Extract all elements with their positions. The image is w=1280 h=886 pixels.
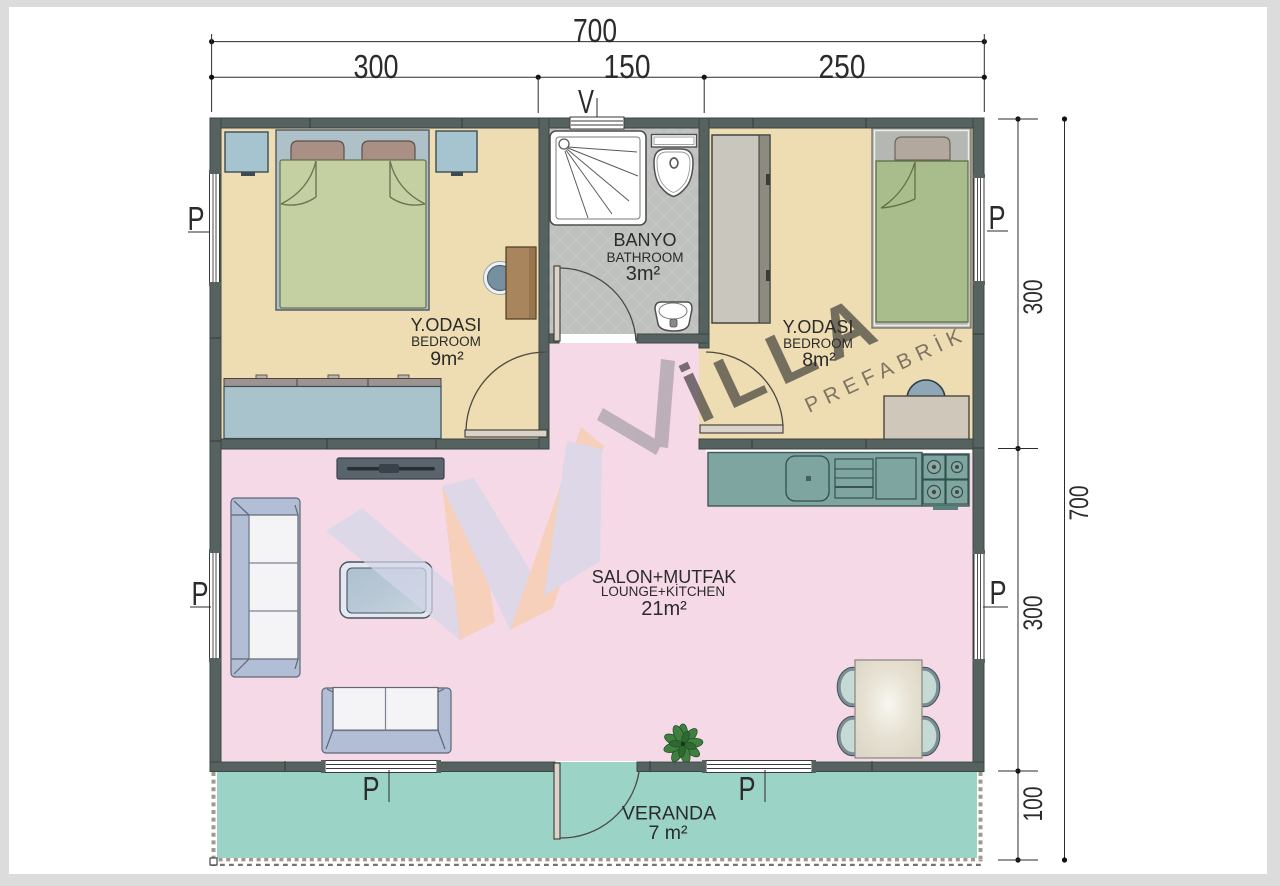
svg-text:250: 250 xyxy=(819,48,866,85)
svg-text:BEDROOM: BEDROOM xyxy=(411,334,481,349)
svg-text:700: 700 xyxy=(573,12,617,49)
svg-text:7 m²: 7 m² xyxy=(649,822,689,844)
svg-text:100: 100 xyxy=(1018,787,1048,822)
svg-text:300: 300 xyxy=(354,48,399,85)
svg-text:P: P xyxy=(739,770,756,807)
svg-text:Y.ODASI: Y.ODASI xyxy=(411,315,482,335)
svg-text:21m²: 21m² xyxy=(641,598,687,620)
svg-text:P: P xyxy=(363,770,380,807)
svg-text:BANYO: BANYO xyxy=(613,230,676,250)
svg-text:P: P xyxy=(192,575,209,612)
svg-text:9m²: 9m² xyxy=(430,348,464,370)
svg-text:Y.ODASI: Y.ODASI xyxy=(783,317,854,337)
svg-text:P: P xyxy=(989,199,1006,236)
svg-text:300: 300 xyxy=(1018,280,1048,315)
svg-text:150: 150 xyxy=(604,48,651,85)
svg-text:P: P xyxy=(188,200,205,237)
svg-text:300: 300 xyxy=(1018,596,1048,631)
svg-text:8m²: 8m² xyxy=(802,349,836,371)
svg-text:LOUNGE+KİTCHEN: LOUNGE+KİTCHEN xyxy=(601,584,725,599)
svg-text:3m²: 3m² xyxy=(626,263,661,285)
svg-text:V: V xyxy=(578,83,594,120)
svg-text:P: P xyxy=(990,574,1007,611)
svg-text:700: 700 xyxy=(1064,486,1094,521)
